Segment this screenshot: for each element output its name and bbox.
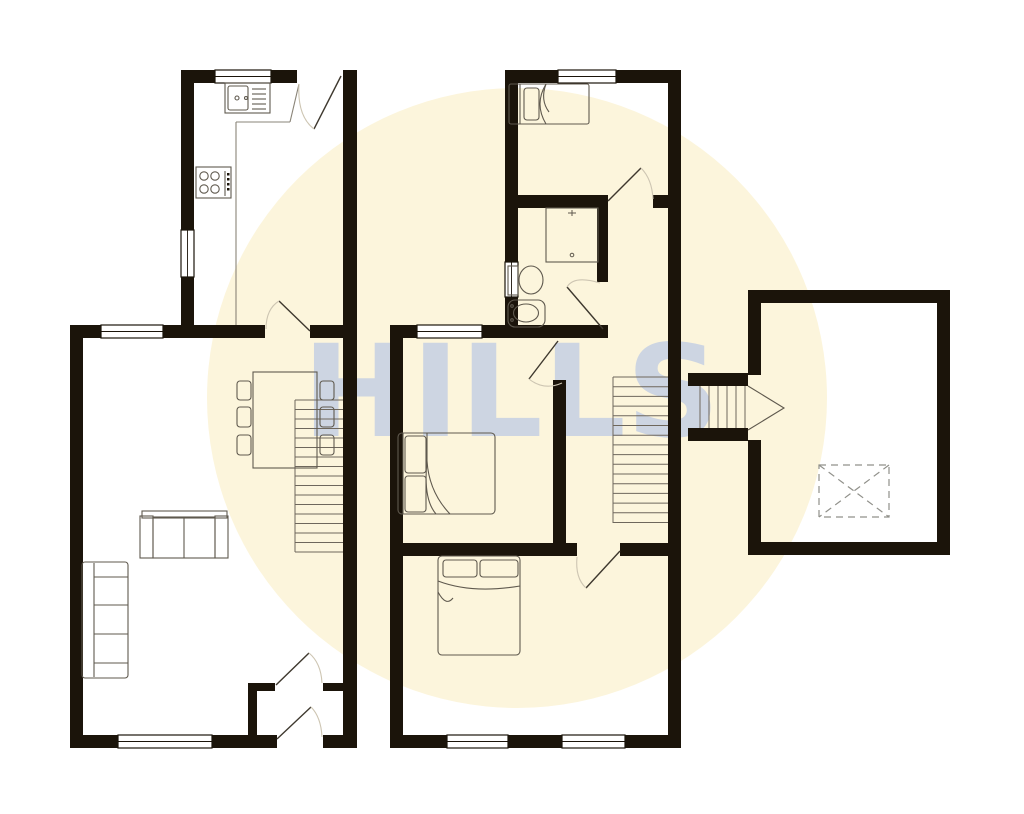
bedroom1-divider-wall xyxy=(505,195,608,208)
bedroom2-top-wall xyxy=(482,325,608,338)
first-bottom-wall xyxy=(625,735,681,748)
living-bottom-wall xyxy=(70,735,118,748)
first-right-wall xyxy=(668,70,681,748)
sofa-two-seat-arm xyxy=(215,516,228,558)
kitchen-top-wall xyxy=(271,70,297,83)
bathroom-right-wall xyxy=(597,203,608,282)
garage-stair-wall xyxy=(688,428,748,441)
hob-knob xyxy=(227,173,230,176)
door-arc xyxy=(299,84,314,129)
ground-right-wall xyxy=(343,70,357,748)
garage-right-wall xyxy=(937,290,950,555)
sofa-three-seat xyxy=(82,562,128,678)
living-left-wall xyxy=(70,325,83,748)
living-top-wall xyxy=(163,325,265,338)
kitchen-counter xyxy=(290,84,299,122)
door-leaf xyxy=(276,653,309,685)
kitchen-left-wall xyxy=(181,70,194,230)
bedroom2-right-wall xyxy=(553,380,566,556)
bedroom3-top-wall xyxy=(390,543,577,556)
garage-left-wall xyxy=(748,290,761,375)
hob-burner xyxy=(200,172,208,180)
hob-burner xyxy=(200,185,208,193)
garage-left-wall xyxy=(748,440,761,555)
first-left-lower-wall xyxy=(390,325,403,748)
door-arc xyxy=(309,653,322,683)
first-left-wall xyxy=(505,70,518,197)
garage-stair-wall xyxy=(688,373,748,386)
hob-knob xyxy=(227,188,230,191)
sofa-two-seat-arm xyxy=(140,516,153,558)
kitchen-top-wall xyxy=(181,70,215,83)
living-bottom-wall xyxy=(212,735,277,748)
hob-knob xyxy=(227,178,230,181)
floor-plan-image: HILLS xyxy=(0,0,1024,814)
hob-burner xyxy=(211,185,219,193)
living-bottom-wall xyxy=(323,735,357,748)
sink-drain xyxy=(235,96,239,100)
first-bottom-wall xyxy=(508,735,562,748)
door-leaf xyxy=(314,76,341,129)
garage-bottom-wall xyxy=(748,542,950,555)
porch-left-wall xyxy=(248,683,257,748)
porch-top-wall xyxy=(323,683,343,691)
garage-top-wall xyxy=(748,290,950,303)
sink-tap xyxy=(245,97,248,100)
floor-plan-canvas: HILLS xyxy=(0,0,1024,814)
door-arc xyxy=(311,707,322,737)
hob-burner xyxy=(211,172,219,180)
bedroom1-divider-wall xyxy=(653,195,668,208)
bedroom3-top-wall xyxy=(620,543,668,556)
hob-knob xyxy=(227,183,230,186)
living-top-wall xyxy=(310,325,343,338)
door-leaf xyxy=(277,707,311,739)
first-bottom-wall xyxy=(390,735,447,748)
porch-top-wall xyxy=(248,683,275,691)
